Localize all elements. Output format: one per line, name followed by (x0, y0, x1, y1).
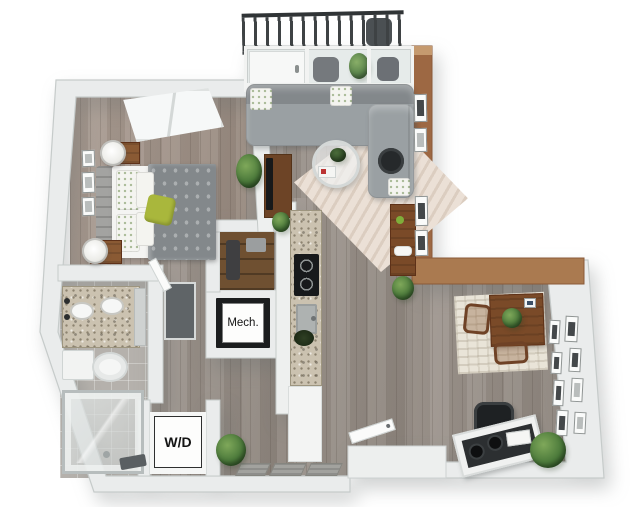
faucet-icon (64, 314, 70, 320)
laundry-closet-right-wall (206, 400, 220, 476)
vanity-cabinet-side (134, 288, 146, 346)
console-decor-dish (394, 246, 412, 256)
picture-frame (82, 172, 96, 193)
closet-shelf-items (246, 238, 266, 252)
gallery-frame (552, 380, 564, 407)
dining-north-wall (412, 258, 584, 284)
gallery-frame (568, 348, 581, 373)
gallery-frame (570, 378, 583, 403)
balcony-chair (377, 57, 399, 81)
dining-chair (493, 341, 528, 365)
table-centerpiece-plant (502, 308, 522, 328)
closet-interior (220, 232, 274, 290)
door-handle-icon (386, 423, 391, 428)
office-plant (530, 432, 566, 468)
faucet-icon (64, 298, 70, 304)
mech-label: Mech. (222, 303, 264, 343)
tablet-on-table (524, 298, 536, 308)
accent-wall-frame (415, 196, 429, 226)
gallery-frame (555, 410, 568, 437)
bedroom-bathroom-wall (58, 265, 163, 281)
bathroom-hall-wall (148, 281, 163, 403)
bathroom-sliding-door (164, 282, 196, 340)
counter-floral-decor (294, 330, 314, 346)
gallery-frame (564, 316, 578, 343)
wd-label-text: W/D (164, 434, 191, 450)
dining-chair (463, 303, 492, 336)
floor-plan-scene: Mech. W/D (0, 0, 639, 507)
window-mullion (166, 88, 176, 142)
vanity-sink (70, 302, 94, 320)
accent-wall-frame (414, 94, 427, 122)
accent-pillow (143, 193, 176, 226)
washer-dryer-unit: W/D (154, 416, 202, 468)
floor-plant (392, 276, 414, 300)
sofa-pillow (250, 88, 272, 110)
tablet-screen (527, 301, 533, 305)
gallery-frame (573, 412, 586, 435)
cooktop (294, 254, 319, 296)
accent-wall-frame (414, 128, 427, 152)
kitchen-counter (290, 210, 322, 386)
coffee-table-plant (330, 148, 346, 162)
bedroom-plant (236, 154, 262, 188)
hanging-clothes (226, 240, 240, 280)
living-accent-wall-cap (412, 46, 432, 55)
sofa-tray (378, 148, 404, 174)
door-mat (305, 463, 343, 476)
table-lamp (82, 238, 108, 264)
picture-frame (82, 150, 96, 167)
balcony-plant (349, 53, 369, 79)
tv (266, 158, 273, 210)
console-decor-apple (396, 216, 404, 224)
media-console (390, 204, 416, 276)
picture-frame (82, 197, 96, 216)
kitchen-tall-cabinet (288, 386, 322, 462)
sofa-pillow (330, 86, 352, 106)
magazine (318, 166, 336, 178)
accent-wall-frame (415, 230, 428, 256)
toilet-bowl (92, 352, 128, 382)
door-handle-icon (295, 65, 299, 73)
door-mat (235, 463, 271, 476)
corner-plant (216, 434, 246, 466)
magazine-cover (321, 169, 326, 174)
vanity-sink (100, 297, 124, 315)
mech-label-text: Mech. (227, 317, 258, 329)
gallery-frame (548, 320, 560, 345)
sofa-pillow (388, 178, 410, 196)
toilet-tank (62, 350, 94, 380)
shower-fixture-icon (103, 451, 110, 458)
faucet-icon (311, 316, 316, 321)
console-plant (272, 212, 290, 232)
table-lamp (100, 140, 126, 166)
balcony-chair (313, 57, 339, 82)
entry-landing (348, 446, 446, 478)
gallery-frame (550, 352, 562, 375)
door-mat (269, 463, 307, 476)
